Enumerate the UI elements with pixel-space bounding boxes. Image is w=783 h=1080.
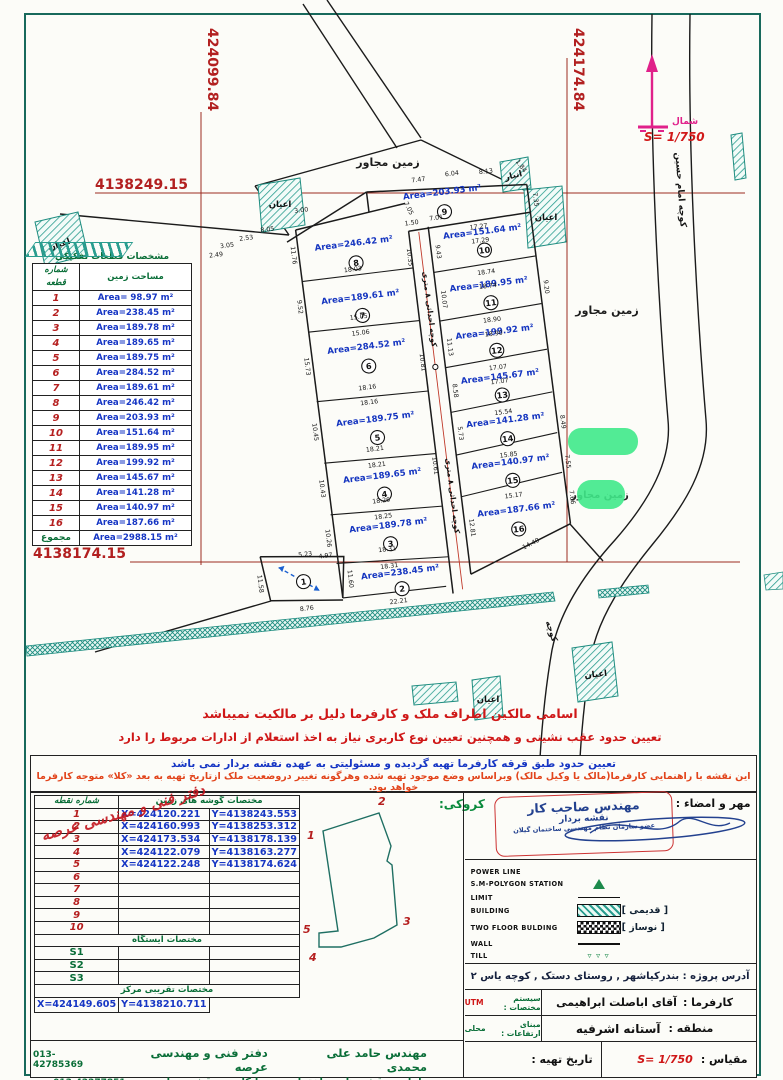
adjacent-land-label: زمین مجاور	[574, 304, 638, 317]
plot-number: 16	[512, 523, 525, 534]
total-area: Area=2988.15 m²	[80, 531, 192, 546]
grid-y1-label: 4138249.15	[95, 177, 188, 193]
dimension-label: 3.00	[294, 206, 309, 215]
plot-row: 10Area=151.64 m²	[33, 426, 192, 441]
plot-number: 12	[491, 345, 504, 356]
ayan-label: اعیان	[269, 200, 292, 210]
plot-number: 2	[399, 583, 406, 594]
legend-item: TWO FLOOR BULDING[ نوساز ]	[471, 921, 683, 934]
dimension-label: 15.06	[351, 329, 370, 338]
dimension-label: 7.05	[402, 201, 415, 217]
plot-row: 6Area=284.52 m²	[33, 366, 192, 381]
dimension-label: 8.58	[451, 383, 460, 398]
plot-area-label: Area=246.42 m²	[314, 234, 393, 254]
new-alley-label: کوچه احداثی ۸ متری	[421, 271, 439, 348]
dimension-label: 9.20	[542, 279, 551, 294]
plot-row: 8Area=246.42 m²	[33, 396, 192, 411]
plot-row: 11Area=189.95 m²	[33, 441, 192, 456]
plot-number: 10	[478, 244, 491, 255]
dimension-label: 18.90	[484, 330, 503, 339]
grid-x1-label: 424099.84	[204, 28, 220, 112]
ayan-label: اعیان	[477, 695, 500, 705]
dimension-label: 15.73	[302, 357, 311, 376]
dimension-label: 11.60	[345, 570, 354, 589]
total-label: مجموع	[33, 531, 80, 546]
dimension-label: 22.21	[389, 597, 408, 606]
dimension-label: 7.55	[563, 454, 572, 469]
dimension-label: 17.07	[490, 377, 509, 386]
till-symbol-icon: ▿ ▿ ▿	[588, 951, 610, 960]
region-row: مبنای ارتفاعات : محلی منطقه : آستانه اشر…	[465, 1016, 756, 1042]
legend-item: LIMIT	[471, 891, 622, 904]
warning-line-1: اسامی مالکین اطراف ملک و کارفرما دلیل بر…	[60, 706, 720, 721]
dimension-label: 18.03	[344, 265, 363, 274]
region-value: آستانه اشرفیه	[576, 1022, 661, 1036]
legend-item: S.M-POLYGON STATION	[471, 877, 622, 890]
title-block-main: شماره نقطه مختصات گوشه های زمین 1X=42412…	[30, 792, 757, 1078]
svg-text:3: 3	[403, 915, 411, 928]
plot-area-label: Area=189.65 m²	[343, 466, 422, 486]
plot-area-label: Area=203.93 m²	[403, 183, 482, 203]
table-decoration	[25, 242, 134, 257]
north-word: شمال	[672, 117, 698, 127]
adjacent-land-label: زمین مجاور	[355, 156, 419, 169]
plot-row: 14Area=141.28 m²	[33, 486, 192, 501]
elevation-datum-label: مبنای ارتفاعات :	[489, 1020, 541, 1038]
dimension-label: 8.76	[299, 605, 314, 614]
dimension-label: 18.16	[358, 383, 377, 392]
survey-sheet: 424099.84 424174.84 4138249.15 4138174.1…	[0, 0, 783, 1080]
ayan-label: اعیان	[535, 213, 558, 223]
plot-row: 3Area=189.78 m²	[33, 321, 192, 336]
office-name: دفتر فنی و مهندسی عرصه	[126, 1046, 268, 1074]
dimension-label: 1.50	[404, 219, 419, 228]
client-label: کارفرما :	[683, 996, 733, 1009]
imam-alley-label: کوچه امام حسین	[672, 152, 687, 228]
note-line-1: تعیین حدود طبق قرقه کارفرما تهیه گردیده …	[31, 758, 756, 770]
legend-item: TILL▿ ▿ ▿	[471, 949, 622, 962]
date-label: تاریخ تهیه :	[531, 1053, 592, 1066]
dimension-label: 14.40	[522, 537, 541, 551]
dimension-label: 7.01	[429, 214, 444, 223]
parcel-plain	[412, 682, 458, 705]
coord-system-value: UTM	[465, 998, 484, 1007]
dimension-label: 11.58	[255, 575, 264, 594]
plot-number: 15	[506, 475, 519, 486]
notes-box: تعیین حدود طبق قرقه کارفرما تهیه گردیده …	[30, 755, 757, 792]
plot-row: 2Area=238.45 m²	[33, 306, 192, 321]
elevation-datum-value: محلی	[465, 1024, 486, 1033]
plot-row: 13Area=145.67 m²	[33, 471, 192, 486]
plots-area-table: مشخصات قطعات تفکیکی شماره قطعه مساحت زمی…	[32, 252, 192, 546]
plot-number: 13	[496, 389, 509, 400]
alley-label: کوچه	[543, 620, 559, 644]
plot-row: 12Area=199.92 m²	[33, 456, 192, 471]
dimension-label: 5.73	[456, 426, 465, 441]
dimension-label: 8.13	[479, 168, 494, 177]
dimension-label: 18.26	[372, 496, 391, 505]
checker-symbol-icon	[577, 921, 621, 934]
office-engineer: مهندس حامد علی محمدی	[294, 1046, 427, 1074]
svg-text:4: 4	[308, 951, 317, 964]
grid-y2-label: 4138174.15	[33, 546, 126, 562]
engineer-stamp: مهندس صاحب کار نقشه بردار عضو سازمان نظا…	[494, 791, 674, 857]
svg-text:1: 1	[307, 829, 315, 842]
dimension-label: 4.97	[318, 552, 333, 561]
svg-text:2: 2	[378, 795, 386, 808]
dimension-label: 3.05	[220, 242, 235, 251]
grid-x2-label: 424174.84	[570, 28, 586, 112]
dimension-label: 10.81	[418, 353, 427, 372]
dimension-label: 10.07	[439, 290, 448, 309]
col-header-land-area: مساحت زمین	[80, 264, 192, 291]
dimension-label: 18.21	[366, 445, 385, 454]
dimension-label: 18.74	[477, 268, 496, 277]
map-legend: POWER LINES.M-POLYGON STATIONLIMITBUILDI…	[465, 860, 756, 964]
parcel-strip-right	[731, 133, 746, 180]
new-alley-label: کوچه احداثی ۸ متری	[444, 458, 462, 535]
dimension-label: 10.35	[405, 248, 414, 267]
dimension-label: 18.74	[479, 282, 498, 291]
plot-number: 11	[485, 297, 498, 308]
seal-label: مهر و امضاء :	[676, 797, 751, 810]
dimension-label: 10.43	[317, 479, 326, 498]
dimension-label: 18.21	[368, 461, 387, 470]
plot-row: 1Area= 98.97 m²	[33, 291, 192, 306]
project-address: آدرس پروژه : بندرکیاشهر , روستای دستک , …	[471, 971, 750, 982]
wall-symbol-icon	[578, 943, 620, 945]
scale-label: مقیاس :	[701, 1053, 748, 1066]
dimension-label: 18.90	[483, 316, 502, 325]
office-phone-1: 013-42785369	[33, 1050, 100, 1070]
dimension-label: 11.76	[289, 246, 298, 265]
scale-row: تاریخ تهیه : مقیاس : S= 1/750	[465, 1042, 756, 1077]
dimension-label: 15.17	[504, 491, 523, 500]
plot-number: 14	[501, 433, 514, 444]
power-pole-icon	[432, 364, 438, 370]
plot-area-label: Area=189.75 m²	[336, 410, 415, 430]
plot-row: 4Area=189.65 m²	[33, 336, 192, 351]
plot-area-label: Area=189.61 m²	[321, 288, 400, 308]
plot-row: 16Area=187.66 m²	[33, 516, 192, 531]
legend-item: BUILDING[ قدیمی ]	[471, 904, 687, 917]
dimension-label: 18.31	[378, 545, 397, 554]
plot-area-label: Area=284.52 m²	[327, 337, 406, 357]
col-header-point-no: شماره نقطه	[35, 796, 119, 809]
title-block: تعیین حدود طبق قرقه کارفرما تهیه گردیده …	[30, 755, 757, 1078]
dimension-label: 11.13	[445, 338, 454, 357]
line-symbol-icon	[578, 897, 620, 898]
seal-row: مهر و امضاء : مهندس صاحب کار نقشه بردار …	[465, 793, 756, 860]
dimension-label: 9.43	[434, 244, 443, 259]
plot-row: 15Area=140.97 m²	[33, 501, 192, 516]
client-row: سیستم مختصات : UTM کارفرما : آقای اباصلت…	[465, 990, 756, 1016]
dimension-label: 5.23	[298, 550, 313, 559]
scale-value: S= 1/750	[637, 1053, 693, 1066]
dimension-label: 7.47	[411, 176, 426, 185]
plot-row: 7Area=189.61 m²	[33, 381, 192, 396]
plot-row: 5Area=189.75 m²	[33, 351, 192, 366]
region-label: منطقه :	[669, 1022, 714, 1035]
sketch-polygon: 12345	[293, 793, 463, 1005]
client-name: آقای اباصلت ابراهیمی	[556, 996, 677, 1009]
dimension-label: 18.16	[360, 398, 379, 407]
plot-area-label: Area=238.45 m²	[361, 563, 440, 583]
coord-system-label: سیستم مختصات :	[487, 994, 541, 1012]
dimension-label: 8.49	[558, 414, 567, 429]
dimension-label: 6.04	[445, 170, 460, 179]
svg-text:5: 5	[303, 923, 311, 936]
hatch-symbol-icon	[577, 904, 621, 917]
dimension-label: 10.45	[310, 423, 319, 442]
note-line-2: این نقشه با راهنمایی کارفرما(مالک یا وکی…	[31, 771, 756, 793]
col-header-plot-no: شماره قطعه	[33, 264, 80, 291]
divider	[31, 1040, 463, 1041]
triangle-symbol-icon	[593, 879, 605, 889]
warning-line-2: تعیین حدود عقب نشینی و همچنین تعیین نوع …	[60, 730, 720, 744]
office-info: مهندس حامد علی محمدی دفتر فنی و مهندسی ع…	[33, 1044, 461, 1080]
dimension-label: 12.81	[467, 518, 476, 537]
dimension-label: 10.61	[430, 456, 439, 475]
dimension-label: 2.49	[209, 251, 224, 260]
dimension-label: 9.52	[295, 300, 304, 315]
project-address-row: آدرس پروژه : بندرکیاشهر , روستای دستک , …	[465, 964, 756, 990]
dimension-label: 2.53	[239, 234, 254, 243]
plot-row: 9Area=203.93 m²	[33, 411, 192, 426]
map-scale-label: S= 1/750	[644, 130, 705, 144]
plot-area-label: Area=187.66 m²	[477, 500, 556, 520]
dimension-label: 10.26	[323, 529, 332, 548]
